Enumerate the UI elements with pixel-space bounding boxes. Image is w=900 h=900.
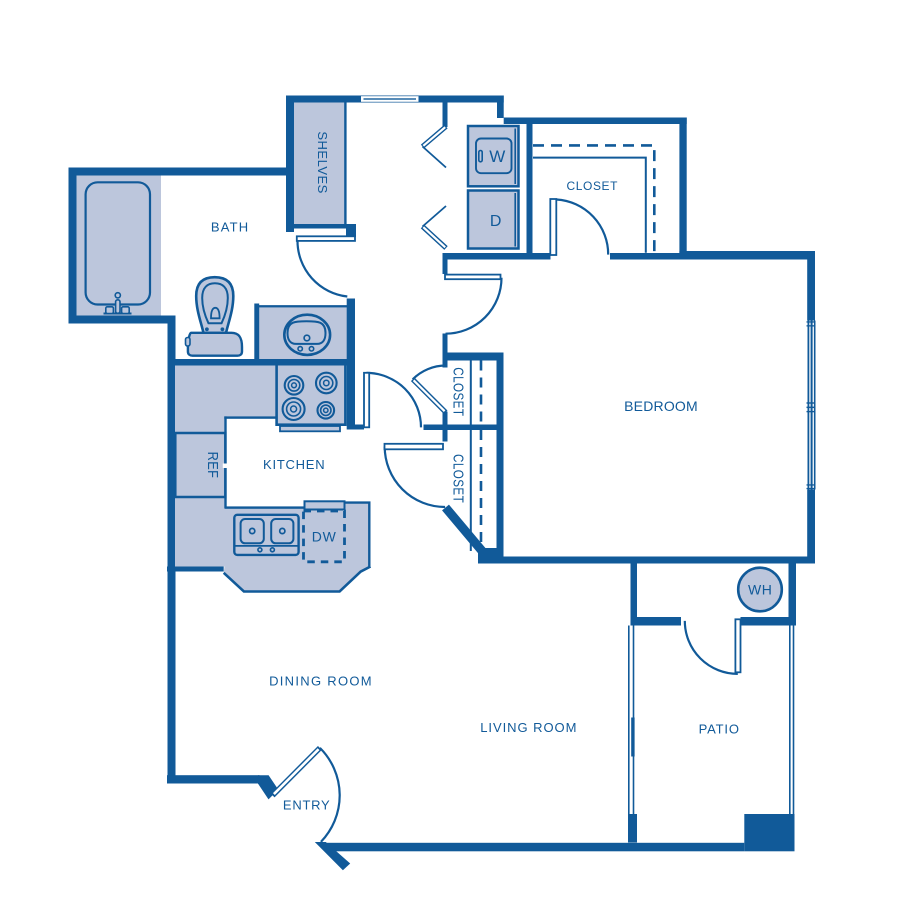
svg-text:DW: DW	[312, 529, 337, 545]
svg-text:ENTRY: ENTRY	[283, 797, 331, 812]
svg-text:DINING ROOM: DINING ROOM	[269, 674, 373, 689]
svg-text:PATIO: PATIO	[699, 722, 740, 737]
svg-text:CLOSET: CLOSET	[566, 179, 618, 193]
svg-text:D: D	[490, 213, 502, 230]
svg-text:W: W	[489, 147, 505, 166]
svg-text:BEDROOM: BEDROOM	[624, 398, 698, 414]
svg-text:SHELVES: SHELVES	[315, 131, 330, 194]
svg-text:REF: REF	[205, 452, 222, 479]
svg-text:WH: WH	[748, 581, 772, 597]
svg-text:KITCHEN: KITCHEN	[263, 457, 325, 472]
svg-text:LIVING ROOM: LIVING ROOM	[480, 720, 577, 735]
svg-text:CLOSET: CLOSET	[450, 367, 467, 416]
svg-text:CLOSET: CLOSET	[450, 454, 467, 503]
svg-text:BATH: BATH	[211, 220, 250, 235]
